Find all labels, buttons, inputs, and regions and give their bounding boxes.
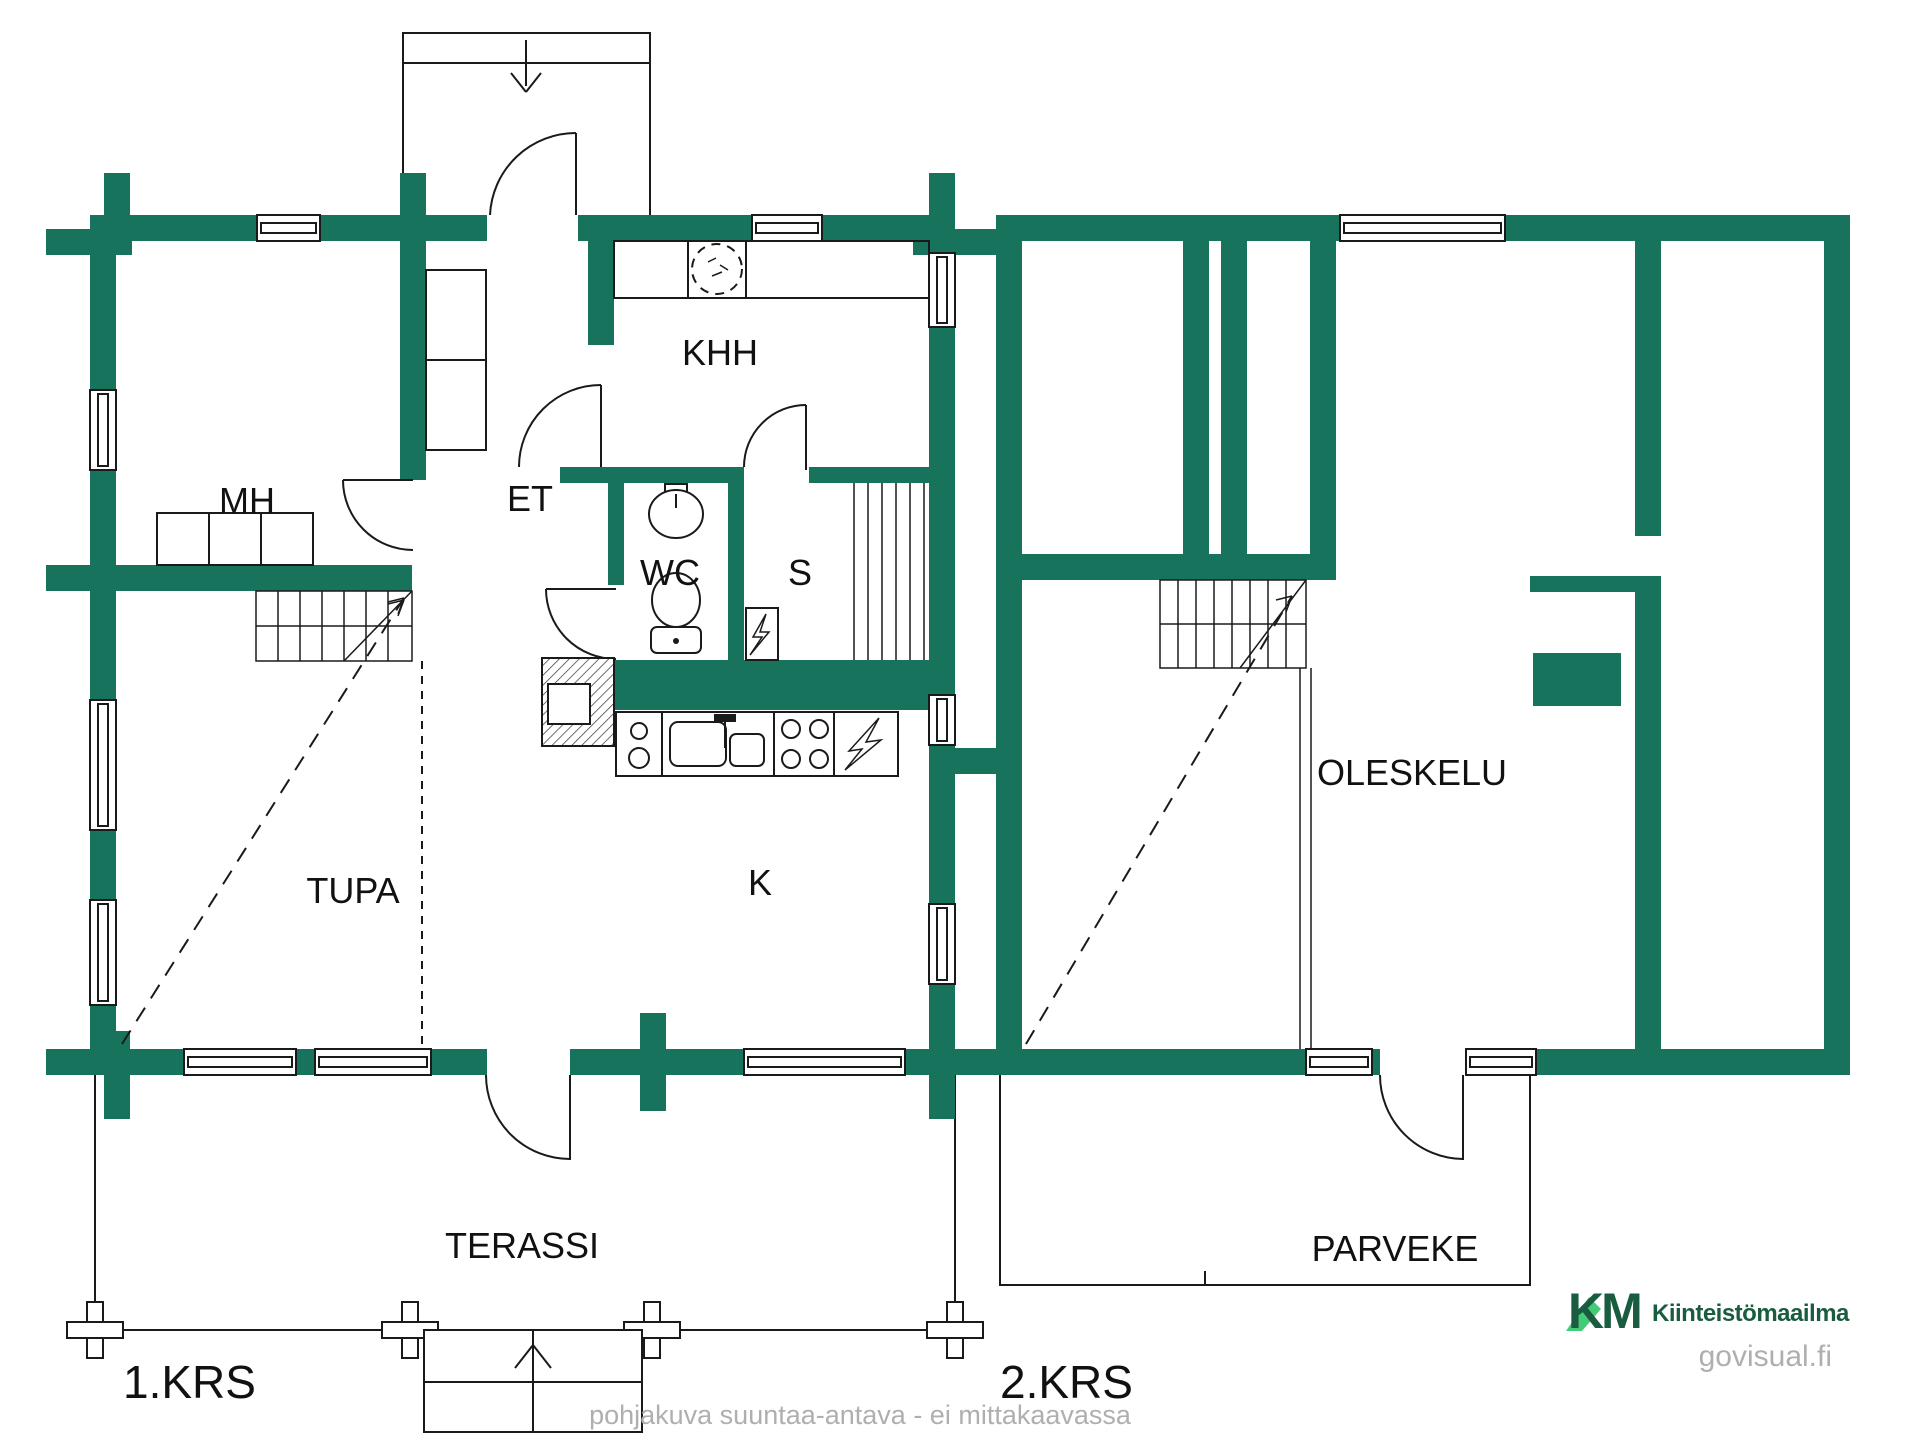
window (90, 390, 116, 470)
window (929, 695, 955, 745)
window (90, 900, 116, 1005)
wardrobe-icon (426, 270, 486, 450)
wall (1536, 1049, 1850, 1075)
sauna-heater-icon (746, 608, 778, 660)
log-stub (929, 1031, 955, 1119)
disclaimer-text: pohjakuva suuntaa-antava - ei mittakaava… (589, 1400, 1132, 1430)
wall (90, 830, 116, 900)
log-stub (104, 1031, 130, 1119)
log-stub (46, 229, 132, 255)
wall (588, 241, 614, 345)
wall (320, 215, 403, 241)
wall (1635, 241, 1661, 536)
room-label-mh: MH (219, 480, 275, 521)
watermark-text: govisual.fi (1699, 1340, 1832, 1373)
wall (996, 215, 1340, 241)
km-logo-initials: KM (1568, 1283, 1640, 1339)
fireplace-icon (542, 658, 614, 746)
wall (296, 1049, 315, 1075)
window (929, 904, 955, 984)
window (315, 1049, 431, 1075)
floor1-label: 1.KRS (123, 1356, 256, 1408)
wall (809, 467, 929, 483)
wall (996, 1049, 1306, 1075)
chimney (1533, 653, 1621, 706)
room-label-s: S (788, 552, 812, 593)
wall (608, 483, 624, 585)
room-label-terassi: TERASSI (445, 1225, 599, 1266)
window (1340, 215, 1505, 241)
wall (560, 467, 744, 483)
wall (1505, 215, 1850, 241)
wall (90, 565, 412, 591)
floor-plan-drawing: MH ET KHH WC S K TUPA TERASSI 1.KRS (0, 0, 1920, 1440)
window (184, 1049, 296, 1075)
wall (1372, 1049, 1380, 1075)
window (1306, 1049, 1372, 1075)
window (752, 215, 822, 241)
window (90, 700, 116, 830)
wall (996, 554, 1336, 580)
log-stub (400, 173, 426, 241)
log-stub (46, 565, 116, 591)
room-label-parveke: PARVEKE (1312, 1228, 1479, 1269)
window (744, 1049, 905, 1075)
floor-plan-page: MH ET KHH WC S K TUPA TERASSI 1.KRS (0, 0, 1920, 1440)
wall (929, 327, 955, 695)
room-label-tupa: TUPA (306, 870, 399, 911)
wall (1221, 241, 1247, 554)
wall (996, 215, 1022, 1075)
wall (1310, 241, 1336, 554)
wall (1635, 576, 1661, 1049)
wall (608, 660, 929, 710)
log-stub (640, 1013, 666, 1111)
room-label-wc: WC (640, 552, 700, 593)
window (257, 215, 320, 241)
room-label-khh: KHH (682, 332, 758, 373)
room-label-oleskelu: OLESKELU (1317, 752, 1507, 793)
wall (1183, 241, 1209, 554)
washing-machine-icon (692, 244, 742, 294)
wall (578, 215, 752, 241)
wall (728, 483, 744, 660)
room-label-k: K (748, 862, 772, 903)
room-label-et: ET (507, 478, 553, 519)
window (929, 253, 955, 327)
wall (1530, 576, 1635, 592)
wall (400, 241, 426, 480)
wall (1824, 215, 1850, 1075)
log-stub (929, 748, 997, 774)
wall (431, 1049, 487, 1075)
km-logo-name: Kiinteistömaailma (1652, 1300, 1850, 1327)
window (1466, 1049, 1536, 1075)
